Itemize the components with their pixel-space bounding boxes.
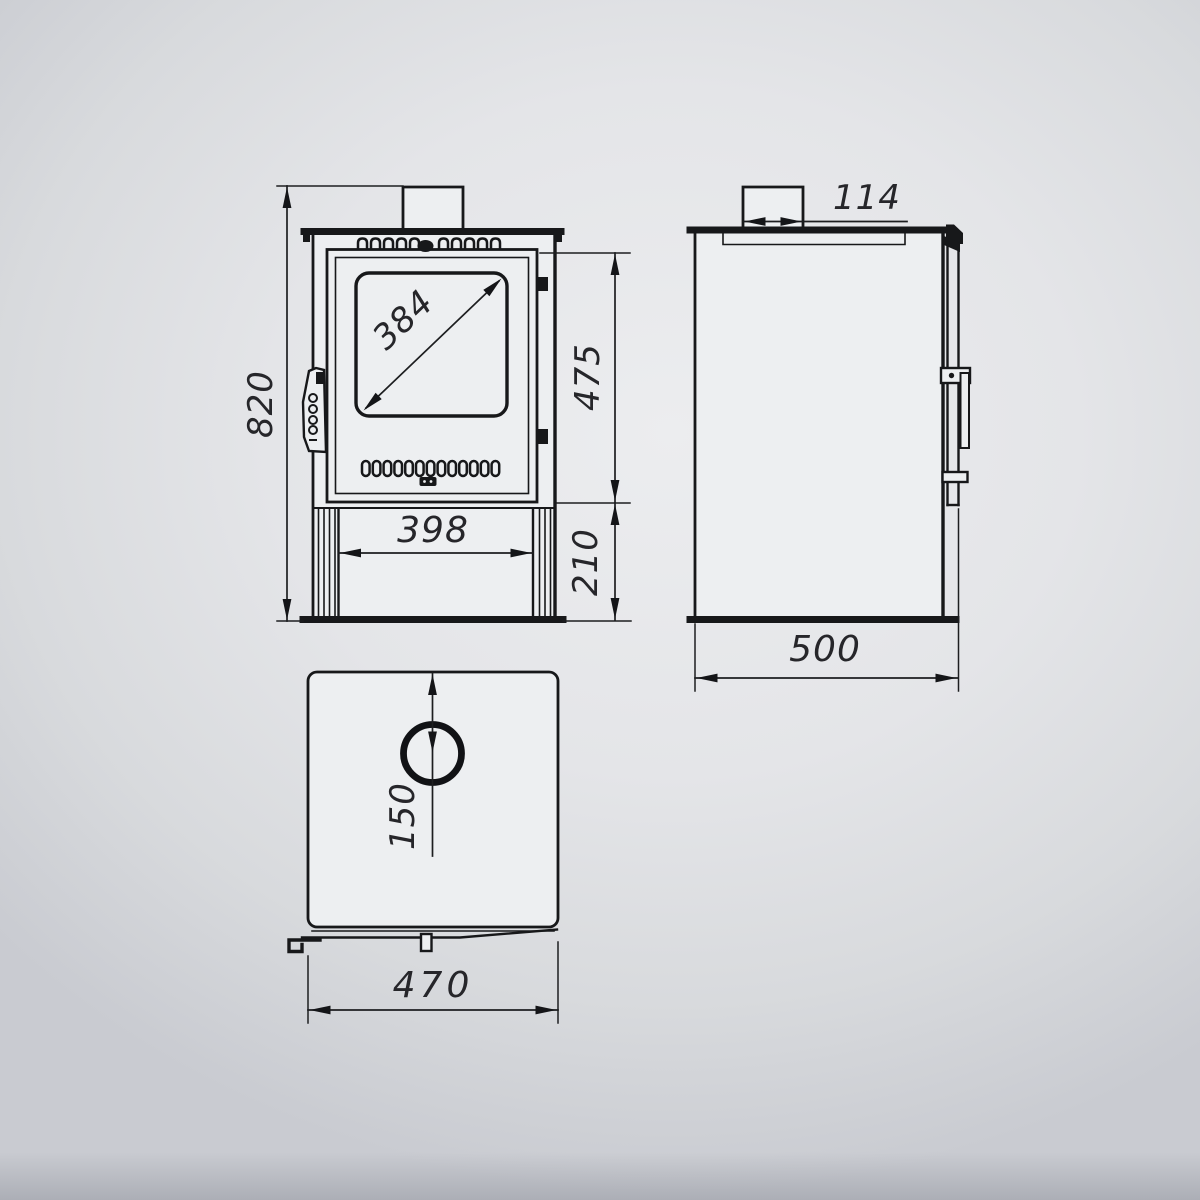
- front-body-face: [313, 232, 555, 620]
- floor-line-front: [277, 620, 631, 622]
- top-view: 150 470: [289, 672, 558, 1023]
- dim-label-114: 114: [833, 178, 901, 218]
- handle-top-hook: [289, 940, 320, 952]
- door-latch-side: [943, 472, 968, 482]
- dim-label-398: 398: [397, 510, 469, 551]
- side-body-face: [695, 233, 943, 619]
- dim-label-475: 475: [568, 343, 608, 411]
- dim-label-820: 820: [241, 370, 281, 438]
- front-chimney-face: [403, 187, 463, 230]
- side-chimney-face: [743, 187, 803, 230]
- latch-tab-top: [421, 934, 432, 951]
- front-lip-top: [289, 930, 557, 952]
- dim-label-470: 470: [393, 965, 474, 1006]
- dim-width: 470: [308, 942, 558, 1023]
- air-control-plate: [420, 477, 437, 486]
- door-handle-lever: [303, 368, 326, 452]
- dim-label-210: 210: [566, 528, 606, 596]
- side-view: 114 500: [690, 178, 970, 691]
- stove-dimension-drawing: 384: [0, 0, 1200, 1200]
- dim-label-500: 500: [789, 629, 861, 670]
- blueprint-canvas: 384: [0, 0, 1200, 1200]
- door-handle-side: [941, 368, 970, 448]
- dim-label-150: 150: [383, 782, 423, 850]
- front-view: 384: [241, 186, 631, 621]
- hinge-top: [536, 277, 548, 291]
- hinge-bottom: [536, 429, 548, 444]
- dim-base-height: 210: [566, 503, 619, 620]
